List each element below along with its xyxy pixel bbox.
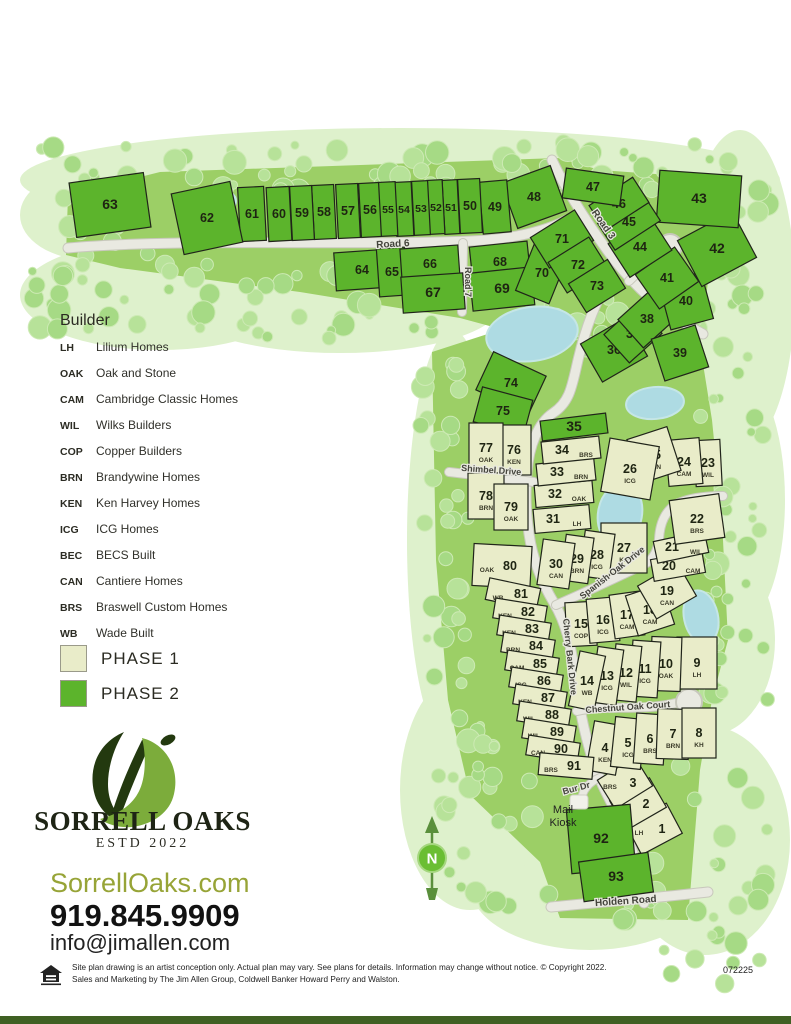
tree-icon — [741, 786, 764, 809]
lot-number: 79 — [504, 500, 518, 514]
lot-number: 61 — [245, 207, 259, 221]
lot-builder-code: BRS — [690, 528, 704, 535]
lot-number: 3 — [630, 776, 637, 790]
lot-number: 54 — [398, 204, 410, 216]
phase-legend: PHASE 1PHASE 2 — [60, 645, 180, 715]
tree-icon — [738, 628, 752, 642]
tree-icon — [713, 337, 733, 357]
tree-icon — [705, 155, 714, 164]
tree-icon — [425, 315, 439, 329]
tree-icon — [416, 367, 435, 386]
lot-number: 92 — [593, 830, 609, 846]
tree-icon — [268, 147, 282, 161]
tree-icon — [458, 657, 475, 674]
north-label: N — [427, 851, 438, 868]
builder-legend: Builder LHLilium HomesOAKOak and StoneCA… — [60, 312, 310, 652]
tree-icon — [737, 537, 757, 557]
tree-icon — [483, 767, 502, 786]
tree-icon — [432, 769, 446, 783]
lot-number: 35 — [566, 418, 582, 434]
lot-number: 60 — [272, 207, 286, 221]
lot-builder-code: COP — [574, 633, 589, 640]
tree-icon — [185, 168, 203, 186]
tree-icon — [452, 612, 466, 626]
lot-number: 57 — [341, 204, 355, 218]
tree-icon — [448, 772, 459, 783]
phase-2-swatch — [60, 680, 87, 707]
tree-icon — [465, 882, 486, 903]
lot-number: 31 — [546, 512, 560, 526]
tree-icon — [757, 642, 769, 654]
lot-builder-code: KH — [694, 742, 704, 749]
builder-code: WB — [60, 628, 96, 640]
tree-icon — [442, 416, 460, 434]
tree-icon — [50, 285, 68, 303]
builder-name: Wade Built — [96, 626, 154, 640]
lot-number: 34 — [555, 443, 569, 457]
lot-number: 88 — [545, 708, 559, 722]
phone-number[interactable]: 919.845.9909 — [50, 898, 240, 934]
tree-icon — [729, 896, 748, 915]
tree-icon — [457, 847, 470, 860]
tree-icon — [577, 146, 598, 167]
lot-number: 14 — [580, 674, 594, 688]
lot-builder-code: LH — [573, 521, 582, 528]
tree-icon — [426, 668, 443, 685]
lot-builder-code: CAM — [677, 471, 692, 478]
builder-row: BRSBraswell Custom Homes — [60, 600, 310, 614]
lot-number: 41 — [660, 271, 674, 285]
lot-builder-code: CAM — [620, 624, 635, 631]
lot-number: 4 — [602, 741, 609, 755]
tree-icon — [752, 523, 767, 538]
lot-builder-code: WB — [582, 690, 593, 697]
lot-31 — [533, 505, 591, 534]
tree-icon — [659, 945, 669, 955]
tree-icon — [322, 331, 336, 345]
lot-builder-code: CAN — [660, 600, 674, 607]
lot-number: 56 — [363, 203, 377, 217]
tree-icon — [451, 710, 468, 727]
tree-icon — [709, 394, 719, 404]
lot-number: 30 — [549, 557, 563, 571]
brand-estd: ESTD 2022 — [25, 836, 260, 852]
tree-icon — [709, 913, 718, 922]
lot-builder-code: LH — [635, 830, 644, 837]
lot-number: 59 — [295, 206, 309, 220]
footer-line2: Sales and Marketing by The Jim Allen Gro… — [72, 974, 652, 986]
phase-label: PHASE 1 — [101, 649, 180, 669]
builder-code: WIL — [60, 420, 96, 432]
tree-icon — [29, 277, 45, 293]
brand-name: SORRELL OAKS — [25, 806, 260, 837]
tree-icon — [710, 859, 719, 868]
lot-number: 7 — [670, 727, 677, 741]
tree-icon — [704, 561, 722, 579]
tree-icon — [444, 867, 455, 878]
tree-icon — [502, 154, 521, 173]
tree-icon — [163, 149, 186, 172]
lot-builder-code: ICG — [639, 678, 651, 685]
lot-number: 49 — [488, 200, 502, 214]
builder-name: Lilium Homes — [96, 340, 169, 354]
lot-builder-code: BRN — [570, 568, 584, 575]
tree-icon — [43, 137, 64, 158]
lot-number: 86 — [537, 674, 551, 688]
tree-icon — [613, 909, 634, 930]
lot-number: 2 — [643, 797, 650, 811]
lot-builder-code: CAN — [549, 573, 563, 580]
lot-number: 69 — [494, 280, 510, 296]
lot-builder-code: BRS — [643, 748, 657, 755]
lot-number: 62 — [200, 211, 214, 225]
tree-icon — [725, 531, 737, 543]
lot-builder-code: KEN — [598, 757, 612, 764]
website-link[interactable]: SorrellOaks.com — [50, 868, 250, 899]
lot-number: 23 — [701, 456, 715, 470]
lot-builder-code: OAK — [480, 567, 495, 574]
lot-number: 72 — [571, 258, 585, 272]
tree-icon — [184, 267, 205, 288]
lot-number: 89 — [550, 725, 564, 739]
tree-icon — [747, 428, 756, 437]
lot-number: 73 — [590, 279, 604, 293]
mail-kiosk-label: Mail — [553, 804, 573, 816]
tree-icon — [75, 258, 89, 272]
lot-number: 42 — [709, 240, 725, 256]
lot-number: 83 — [525, 622, 539, 636]
builder-row: COPCopper Builders — [60, 444, 310, 458]
lot-number: 32 — [548, 487, 562, 501]
tree-icon — [223, 150, 247, 174]
lot-builder-code: ICG — [622, 752, 634, 759]
builder-code: COP — [60, 446, 96, 458]
lot-number: 93 — [608, 868, 624, 884]
tree-icon — [721, 625, 735, 639]
lot-number: 53 — [415, 203, 427, 215]
lot-number: 68 — [493, 255, 507, 269]
tree-icon — [629, 154, 638, 163]
tree-icon — [77, 275, 87, 285]
lot-number: 91 — [567, 759, 581, 773]
tree-icon — [743, 352, 753, 362]
tree-icon — [95, 281, 113, 299]
tree-icon — [326, 140, 348, 162]
tree-icon — [473, 761, 484, 772]
lot-builder-code: OAK — [479, 457, 494, 464]
tree-icon — [433, 627, 454, 648]
lot-number: 64 — [355, 263, 369, 277]
builder-name: Brandywine Homes — [96, 470, 200, 484]
lot-builder-code: BRS — [579, 452, 593, 459]
tree-icon — [748, 180, 769, 201]
lot-number: 8 — [696, 726, 703, 740]
lot-number: 10 — [659, 657, 673, 671]
tree-icon — [164, 284, 174, 294]
equal-housing-icon — [38, 964, 64, 986]
lot-number: 76 — [507, 443, 521, 457]
builder-code: CAM — [60, 394, 96, 406]
lot-number: 22 — [690, 512, 704, 526]
builder-name: Ken Harvey Homes — [96, 496, 200, 510]
tree-icon — [441, 514, 455, 528]
tree-icon — [452, 490, 464, 502]
lot-number: 75 — [496, 404, 510, 418]
builder-code: CAN — [60, 576, 96, 588]
tree-icon — [439, 552, 453, 566]
tree-icon — [688, 138, 701, 151]
tree-icon — [423, 634, 431, 642]
tree-icon — [449, 358, 464, 373]
tree-icon — [522, 773, 538, 789]
builder-list: LHLilium HomesOAKOak and StoneCAMCambrid… — [60, 340, 310, 640]
lot-number: 65 — [385, 265, 399, 279]
lot-number: 26 — [623, 462, 637, 476]
tree-icon — [707, 930, 717, 940]
builder-name: Cambridge Classic Homes — [96, 392, 238, 406]
builder-code: LH — [60, 342, 96, 354]
lot-number: 67 — [425, 284, 441, 300]
tree-icon — [686, 901, 707, 922]
lot-number: 33 — [550, 465, 564, 479]
tree-icon — [423, 595, 445, 617]
lot-number: 74 — [504, 376, 518, 390]
lot-number: 85 — [533, 657, 547, 671]
lot-number: 43 — [691, 190, 707, 206]
tree-icon — [258, 169, 270, 181]
lot-number: 82 — [521, 605, 535, 619]
footer-line1: Site plan drawing is an artist conceptio… — [72, 962, 652, 974]
lot-builder-code: ICG — [624, 478, 636, 485]
lot-builder-code: OAK — [572, 496, 587, 503]
lot-number: 6 — [647, 732, 654, 746]
lot-builder-code: CAM — [643, 619, 658, 626]
lot-builder-code: ICG — [601, 685, 613, 692]
tree-icon — [120, 295, 129, 304]
tree-icon — [738, 303, 750, 315]
lot-builder-code: OAK — [659, 673, 674, 680]
tree-icon — [296, 156, 312, 172]
road-label: Road 7 — [463, 267, 473, 297]
tree-icon — [447, 578, 468, 599]
lot-number: 39 — [673, 346, 687, 360]
builder-row: LHLilium Homes — [60, 340, 310, 354]
lot-number: 55 — [382, 204, 394, 216]
tree-icon — [746, 409, 764, 427]
tree-icon — [522, 806, 544, 828]
lot-builder-code: KEN — [507, 459, 521, 466]
tree-icon — [716, 686, 728, 698]
builder-code: ICG — [60, 524, 96, 536]
builder-code: OAK — [60, 368, 96, 380]
lot-number: 9 — [694, 656, 701, 670]
tree-icon — [456, 678, 467, 689]
tree-icon — [285, 166, 296, 177]
builder-code: BRS — [60, 602, 96, 614]
tree-icon — [722, 593, 734, 605]
builder-name: Oak and Stone — [96, 366, 176, 380]
tree-icon — [748, 514, 756, 522]
tree-icon — [409, 323, 419, 333]
tree-icon — [273, 274, 293, 294]
tree-icon — [426, 141, 449, 164]
tree-icon — [644, 181, 660, 197]
lot-number: 1 — [659, 822, 666, 836]
lot-builder-code: BRS — [603, 784, 617, 791]
tree-icon — [719, 153, 737, 171]
tree-icon — [456, 882, 466, 892]
tree-icon — [417, 515, 433, 531]
lot-number: 50 — [463, 199, 477, 213]
tree-icon — [748, 286, 764, 302]
tree-icon — [556, 138, 580, 162]
tree-icon — [486, 891, 506, 911]
lot-builder-code: BRS — [544, 767, 558, 774]
phase-row: PHASE 1 — [60, 645, 180, 672]
lot-builder-code: WIL — [690, 549, 702, 556]
tree-icon — [620, 148, 629, 157]
lot-number: 5 — [625, 736, 632, 750]
builder-row: KENKen Harvey Homes — [60, 496, 310, 510]
tree-icon — [749, 502, 757, 510]
lot-number: 38 — [640, 312, 654, 326]
tree-icon — [440, 499, 453, 512]
tree-icon — [491, 814, 506, 829]
tree-icon — [162, 263, 179, 280]
tree-icon — [89, 168, 99, 178]
lot-number: 71 — [555, 232, 569, 246]
tree-icon — [292, 270, 302, 280]
builder-row: BECBECS Built — [60, 548, 310, 562]
builder-legend-title: Builder — [60, 312, 310, 330]
tree-icon — [442, 797, 457, 812]
bottom-green-bar — [0, 1016, 791, 1024]
lot-builder-code: OAK — [504, 516, 519, 523]
phase-1-swatch — [60, 645, 87, 672]
lot-number: 81 — [514, 587, 528, 601]
builder-row: CAMCambridge Classic Homes — [60, 392, 310, 406]
lot-number: 51 — [445, 202, 457, 214]
lot-builder-code: BRN — [479, 505, 493, 512]
lot-builder-code: WIL — [702, 472, 714, 479]
lot-number: 58 — [317, 205, 331, 219]
lot-number: 70 — [535, 266, 549, 280]
lot-builder-code: WIL — [620, 682, 632, 689]
tree-icon — [450, 381, 467, 398]
tree-icon — [239, 278, 255, 294]
tree-icon — [489, 741, 499, 751]
tree-icon — [357, 293, 381, 317]
tree-icon — [727, 768, 748, 789]
tree-icon — [424, 470, 442, 488]
tree-icon — [747, 201, 768, 222]
mail-kiosk-label: Kiosk — [550, 817, 577, 829]
tree-icon — [761, 693, 775, 707]
tree-icon — [414, 163, 430, 179]
tree-icon — [28, 267, 36, 275]
lot-number: 87 — [541, 691, 555, 705]
lot-builder-code: ICG — [597, 629, 609, 636]
tree-icon — [458, 628, 471, 641]
lot-number: 16 — [596, 613, 610, 627]
tree-icon — [748, 889, 769, 910]
lot-number: 63 — [102, 196, 118, 212]
tree-icon — [291, 141, 299, 149]
tree-icon — [754, 426, 771, 443]
lot-number: 84 — [529, 639, 543, 653]
lot-91 — [538, 753, 594, 780]
builder-name: Braswell Custom Homes — [96, 600, 227, 614]
builder-row: OAKOak and Stone — [60, 366, 310, 380]
tree-icon — [762, 824, 773, 835]
tree-icon — [64, 156, 81, 173]
builder-name: Copper Builders — [96, 444, 182, 458]
builder-code: BEC — [60, 550, 96, 562]
lot-builder-code: BRN — [666, 743, 680, 750]
lot-number: 80 — [503, 559, 517, 573]
tree-icon — [725, 932, 748, 955]
lot-number: 44 — [633, 240, 647, 254]
lot-number: 47 — [586, 180, 600, 194]
builder-name: BECS Built — [96, 548, 155, 562]
footer-disclaimer: Site plan drawing is an artist conceptio… — [38, 962, 758, 987]
tree-icon — [741, 579, 750, 588]
tree-icon — [517, 139, 532, 154]
builder-row: BRNBrandywine Homes — [60, 470, 310, 484]
lot-number: 19 — [660, 584, 674, 598]
lot-number: 40 — [679, 294, 693, 308]
tree-icon — [121, 141, 131, 151]
lot-number: 78 — [479, 489, 493, 503]
builder-name: Wilks Builders — [96, 418, 171, 432]
lot-number: 77 — [479, 441, 493, 455]
phase-row: PHASE 2 — [60, 680, 180, 707]
tree-icon — [539, 885, 557, 903]
tree-icon — [413, 418, 429, 434]
builder-row: WILWilks Builders — [60, 418, 310, 432]
lot-builder-code: BRN — [574, 474, 588, 481]
lot-builder-code: CAM — [686, 568, 701, 575]
phase-label: PHASE 2 — [101, 684, 180, 704]
builder-row: WBWade Built — [60, 626, 310, 640]
builder-code: KEN — [60, 498, 96, 510]
lot-number: 15 — [574, 617, 588, 631]
lot-number: 48 — [527, 190, 541, 204]
lot-builder-code: ICG — [591, 564, 603, 571]
tree-icon — [732, 367, 744, 379]
builder-name: ICG Homes — [96, 522, 159, 536]
footer-text: Site plan drawing is an artist conceptio… — [72, 962, 652, 987]
tree-icon — [694, 409, 708, 423]
tree-icon — [713, 825, 735, 847]
lot-builder-code: LH — [693, 672, 702, 679]
tree-icon — [687, 792, 702, 807]
builder-row: ICGICG Homes — [60, 522, 310, 536]
tree-icon — [201, 258, 214, 271]
tree-icon — [53, 266, 72, 285]
lot-number: 52 — [430, 202, 442, 214]
site-plan-page: 1LH2CAN3BRS4KEN5ICG6BRS7BRN8KH9LH10OAK11… — [0, 0, 791, 1024]
builder-name: Cantiere Homes — [96, 574, 183, 588]
plan-revision-code: 072225 — [723, 965, 753, 975]
email-link[interactable]: info@jimallen.com — [50, 930, 230, 956]
road-label: Road 6 — [376, 238, 410, 251]
builder-code: BRN — [60, 472, 96, 484]
builder-row: CANCantiere Homes — [60, 574, 310, 588]
lot-number: 66 — [423, 257, 437, 271]
